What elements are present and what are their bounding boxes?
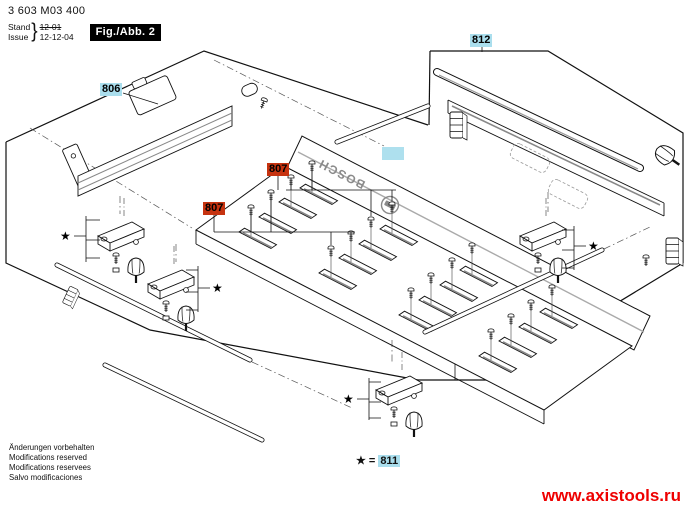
disclaimer-notes: Änderungen vorbehalten Modifications res…	[9, 443, 94, 483]
highlight-patch	[382, 147, 404, 160]
watermark-url: www.axistools.ru	[542, 486, 681, 506]
part-label-807-upper[interactable]: 807	[267, 163, 289, 176]
star-marker: ★	[212, 282, 223, 294]
legend-equals: =	[369, 455, 375, 467]
clamp-block	[666, 238, 683, 266]
foot-assembly	[98, 198, 144, 283]
legend-part-811[interactable]: 811	[378, 455, 400, 467]
star-knob	[652, 142, 685, 172]
note-line: Salvo modificaciones	[9, 473, 94, 483]
part-label-806[interactable]: 806	[100, 83, 122, 96]
screw	[643, 255, 649, 266]
rail-clamp	[62, 286, 81, 309]
star-legend: ★ = 811	[356, 454, 400, 467]
table-assembly: BOSCH	[196, 136, 650, 424]
star-marker: ★	[343, 393, 354, 405]
brace-glyph: }	[31, 20, 37, 43]
stand-label: Stand	[8, 22, 30, 32]
foot-assembly	[148, 246, 194, 331]
issue-label: Issue	[8, 32, 30, 42]
star-marker: ★	[588, 240, 599, 252]
revision-block: Stand Issue } 12-01 12-12-04 Fig./Abb. 2	[8, 21, 161, 43]
note-line: Modifications reservees	[9, 463, 94, 473]
new-revision-date: 12-12-04	[40, 32, 74, 42]
parts-diagram-page: BOSCH	[0, 0, 688, 514]
exploded-diagram: BOSCH	[0, 0, 688, 514]
star-marker: ★	[60, 230, 71, 242]
old-revision-date: 12-01	[40, 22, 74, 32]
legend-star: ★	[356, 454, 366, 467]
figure-badge: Fig./Abb. 2	[90, 24, 162, 41]
document-part-number: 3 603 M03 400	[8, 5, 85, 17]
foot-assembly	[376, 352, 422, 437]
rail-assembly-806	[62, 69, 268, 196]
part-label-812[interactable]: 812	[470, 34, 492, 47]
screw	[258, 97, 267, 109]
note-line: Änderungen vorbehalten	[9, 443, 94, 453]
clamp-block	[450, 112, 467, 140]
part-label-807-lower[interactable]: 807	[203, 202, 225, 215]
note-line: Modifications reserved	[9, 453, 94, 463]
